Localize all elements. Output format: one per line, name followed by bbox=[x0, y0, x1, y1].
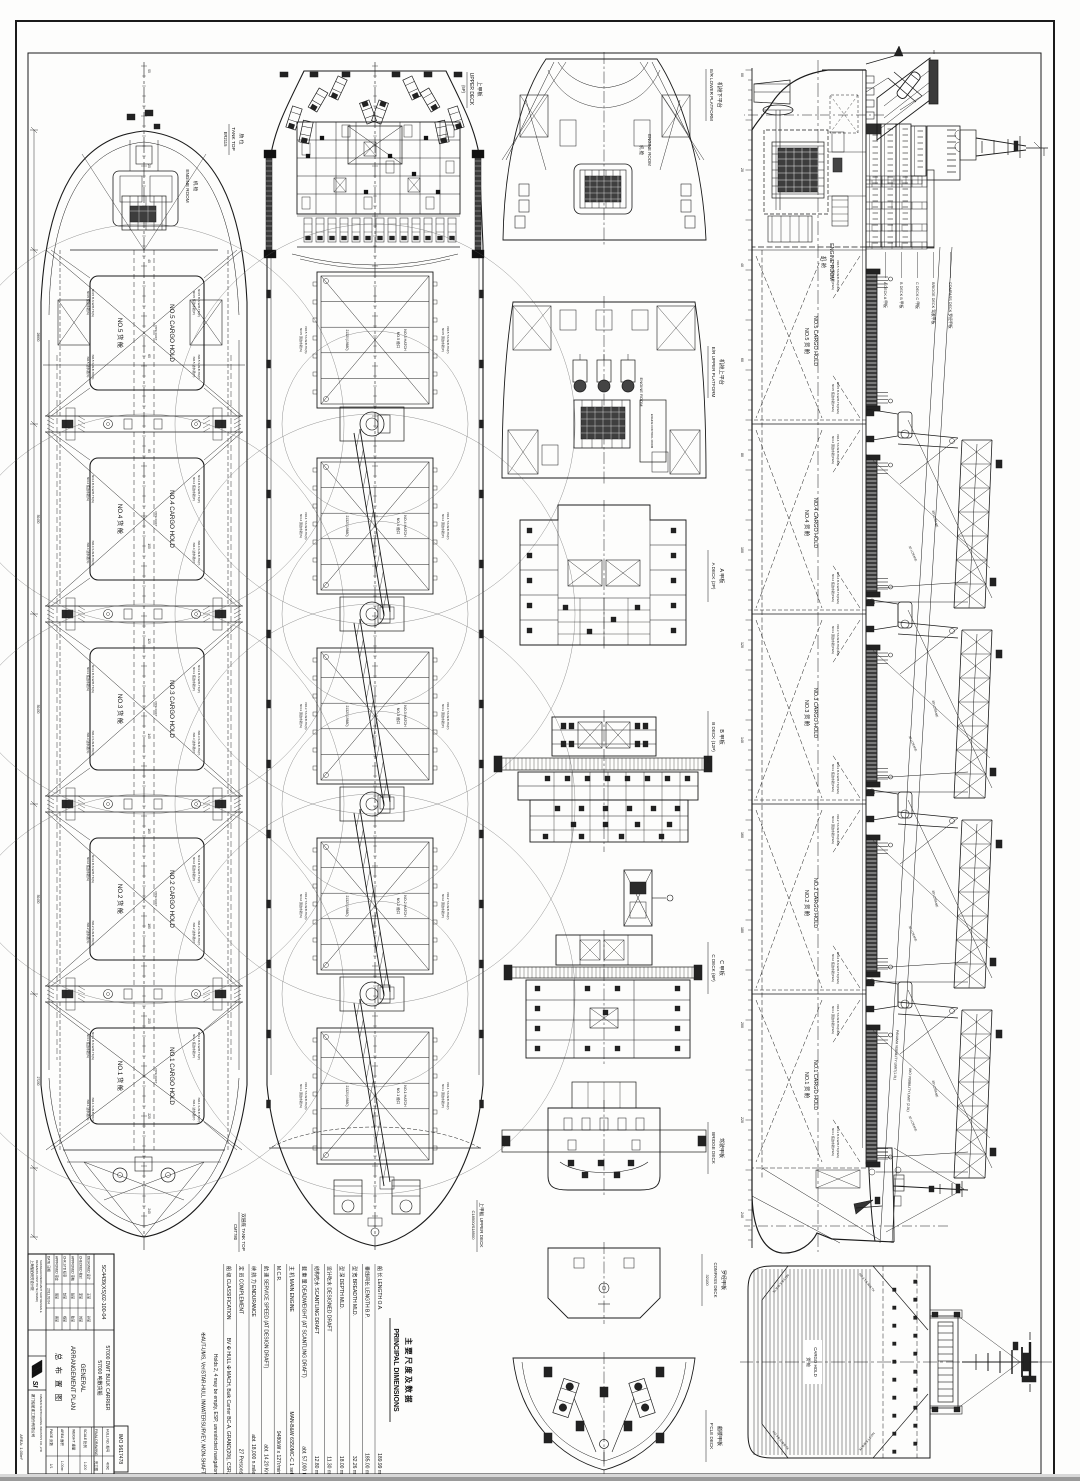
svg-text:主 机 MAIN ENGINE: 主 机 MAIN ENGINE bbox=[288, 1266, 295, 1313]
svg-text:NO.1 CARGO HOLD: NO.1 CARGO HOLD bbox=[812, 1060, 818, 1110]
svg-text:NO.4 货 舱: NO.4 货 舱 bbox=[116, 504, 124, 535]
svg-text:DATE 日期: DATE 日期 bbox=[47, 1256, 52, 1272]
svg-text:垂线间长 LENGTH B.P.: 垂线间长 LENGTH B.P. bbox=[363, 1266, 370, 1318]
svg-text:160: 160 bbox=[147, 828, 151, 834]
svg-text:NO.5 舱口: NO.5 舱口 bbox=[396, 332, 401, 349]
svg-text:180: 180 bbox=[740, 927, 744, 933]
svg-text:主 要 尺 度 及 数 据: 主 要 尺 度 及 数 据 bbox=[404, 1337, 414, 1403]
svg-text:AREA 面积: AREA 面积 bbox=[60, 1429, 65, 1446]
svg-text:NO.1 T.S.W.B.TK(P&S): NO.1 T.S.W.B.TK(P&S) bbox=[836, 1004, 840, 1035]
svg-text:21320(19880): 21320(19880) bbox=[345, 1085, 349, 1106]
svg-text:32100: 32100 bbox=[705, 1274, 710, 1286]
svg-text:NO.3 B.S.W.B.TK(P&S): NO.3 B.S.W.B.TK(P&S) bbox=[836, 762, 840, 794]
svg-text:NO.3 T.S.W.B.TK(P): NO.3 T.S.W.B.TK(P) bbox=[446, 702, 450, 729]
svg-text:NO.3 边水舱(P): NO.3 边水舱(P) bbox=[192, 733, 197, 754]
svg-text:NO.1 B.S.W.B.TK(S): NO.1 B.S.W.B.TK(S) bbox=[91, 1032, 95, 1060]
svg-text:(5P): (5P) bbox=[461, 85, 466, 94]
svg-text:NO.4 底边水舱(P&S): NO.4 底边水舱(P&S) bbox=[831, 574, 836, 602]
svg-text:240: 240 bbox=[147, 1208, 151, 1214]
svg-text:27 Persons: 27 Persons bbox=[237, 1449, 243, 1475]
svg-text:E/R LOWER PLATFORM: E/R LOWER PLATFORM bbox=[709, 69, 714, 121]
svg-text:航 速 SERVICE SPEED (AT DESIGN: 航 速 SERVICE SPEED (AT DESIGN DRAFT) bbox=[263, 1266, 270, 1369]
svg-text:A 甲板: A 甲板 bbox=[718, 569, 726, 585]
svg-text:NO.3 CARGO HOLD: NO.3 CARGO HOLD bbox=[812, 688, 818, 738]
svg-text:NO.5 S.W.B.TK(S): NO.5 S.W.B.TK(S) bbox=[91, 355, 95, 380]
svg-text:RESEARCH INSTITUTE (SDARI): RESEARCH INSTITUTE (SDARI) bbox=[35, 1260, 39, 1302]
svg-text:NO.5 边水舱(P): NO.5 边水舱(P) bbox=[192, 357, 197, 378]
svg-text:Holds 2, 4 may be empty, ESP,: Holds 2, 4 may be empty, ESP, unrestrict… bbox=[212, 1354, 218, 1474]
svg-text:NO.5 CARGO HOLD: NO.5 CARGO HOLD bbox=[168, 304, 175, 362]
svg-text:NO.2 S.W.B.TK(S): NO.2 S.W.B.TK(S) bbox=[91, 921, 95, 946]
svg-text:NO.3 S.W.B.TK(P): NO.3 S.W.B.TK(P) bbox=[197, 731, 201, 756]
svg-text:NO.5 顶边水舱(P): NO.5 顶边水舱(P) bbox=[441, 328, 446, 352]
svg-text:NO.3 货 舱: NO.3 货 舱 bbox=[116, 694, 124, 725]
svg-text:NO.3 S.W.B.TK(S): NO.3 S.W.B.TK(S) bbox=[91, 731, 95, 756]
svg-text:40: 40 bbox=[147, 259, 151, 263]
svg-text:NO.5 T.S.W.B.TK(P&S): NO.5 T.S.W.B.TK(P&S) bbox=[836, 260, 840, 291]
svg-text:NO.5 T.S.W.B.TK(S): NO.5 T.S.W.B.TK(S) bbox=[304, 326, 308, 353]
svg-text:NO.2 货 舱: NO.2 货 舱 bbox=[116, 884, 124, 915]
svg-text:18.00 m: 18.00 m bbox=[338, 1456, 344, 1474]
svg-text:NO.4 T.S.W.B.TK(P): NO.4 T.S.W.B.TK(P) bbox=[446, 512, 450, 539]
svg-text:HULL NO. 船号: HULL NO. 船号 bbox=[106, 1429, 111, 1453]
svg-text:孙某: 孙某 bbox=[87, 1316, 92, 1323]
svg-text:NO.5 边水舱(S): NO.5 边水舱(S) bbox=[86, 357, 91, 378]
svg-text:船 级 CLASSIFICATION: 船 级 CLASSIFICATION bbox=[225, 1266, 232, 1320]
svg-text:240: 240 bbox=[740, 1212, 744, 1218]
svg-text:NO.4 T.S.W.B.TK(P&S): NO.4 T.S.W.B.TK(P&S) bbox=[836, 434, 840, 465]
svg-text:NO.4 底边水舱(S): NO.4 底边水舱(S) bbox=[86, 477, 91, 501]
svg-text:NO.2 T.S.W.B.TK(P&S): NO.2 T.S.W.B.TK(P&S) bbox=[836, 814, 840, 845]
svg-text:21320(19880): 21320(19880) bbox=[345, 515, 349, 536]
svg-text:NO.2 B.S.W.B.TK(S): NO.2 B.S.W.B.TK(S) bbox=[91, 855, 95, 883]
svg-text:NO.1 S.W.B.TK(S): NO.1 S.W.B.TK(S) bbox=[91, 1098, 95, 1123]
svg-text:NO.4 B.S.W.B.TK(P&S): NO.4 B.S.W.B.TK(P&S) bbox=[836, 572, 840, 604]
svg-text:NO.5 顶边水舱(S): NO.5 顶边水舱(S) bbox=[299, 328, 304, 352]
svg-text:NO.4 T.S.W.B.TK(S): NO.4 T.S.W.B.TK(S) bbox=[304, 512, 308, 539]
svg-text:PIPE DUCT: PIPE DUCT bbox=[154, 1069, 158, 1084]
svg-text:NO.4 CARGO HOLD: NO.4 CARGO HOLD bbox=[168, 490, 175, 548]
svg-text:NO.1 T.S.W.B.TK(S): NO.1 T.S.W.B.TK(S) bbox=[304, 1082, 308, 1109]
svg-text:WEIGHT 重量: WEIGHT 重量 bbox=[72, 1429, 77, 1451]
svg-text:罗经甲板: 罗经甲板 bbox=[720, 1270, 727, 1290]
svg-text:型 宽 BREADTH MLD.: 型 宽 BREADTH MLD. bbox=[351, 1266, 358, 1316]
svg-text:C 甲板: C 甲板 bbox=[718, 960, 726, 976]
svg-text:100: 100 bbox=[147, 543, 151, 549]
svg-text:NO.5 CARGO HOLD: NO.5 CARGO HOLD bbox=[812, 316, 818, 366]
svg-text:NO.5 S.W.B.TK(P): NO.5 S.W.B.TK(P) bbox=[197, 355, 201, 380]
svg-text:续 航 力 ENDURANCE: 续 航 力 ENDURANCE bbox=[250, 1266, 257, 1318]
svg-text:30400: 30400 bbox=[36, 895, 40, 904]
svg-text:32.26 m: 32.26 m bbox=[351, 1456, 357, 1474]
svg-text:AREA: 1.00m²: AREA: 1.00m² bbox=[19, 1434, 24, 1460]
svg-text:140: 140 bbox=[740, 737, 744, 743]
svg-text:NO.2 顶边水舱(S): NO.2 顶边水舱(S) bbox=[299, 894, 304, 918]
svg-text:张某: 张某 bbox=[71, 1293, 76, 1300]
svg-text:40: 40 bbox=[740, 263, 744, 267]
svg-text:57000 DWT BULK CARRIER: 57000 DWT BULK CARRIER bbox=[104, 1346, 110, 1411]
svg-text:BV ✠ HULL ✠ MACH, Bulk Carrier: BV ✠ HULL ✠ MACH, Bulk Carrier BC-A, GRA… bbox=[225, 1338, 231, 1474]
svg-text:NO.3 T.S.W.B.TK(S): NO.3 T.S.W.B.TK(S) bbox=[304, 702, 308, 729]
svg-text:王某: 王某 bbox=[87, 1293, 92, 1300]
svg-text:PIPE DUCT: PIPE DUCT bbox=[154, 892, 158, 907]
svg-text:上甲板: 上甲板 bbox=[476, 81, 483, 96]
svg-text:机 舱: 机 舱 bbox=[192, 181, 199, 192]
svg-text:双层底 TANK TOP: 双层底 TANK TOP bbox=[240, 1213, 247, 1251]
svg-text:NO.2 B.S.W.B.TK(P): NO.2 B.S.W.B.TK(P) bbox=[197, 855, 201, 883]
svg-text:NO.3 底边水舱(P&S): NO.3 底边水舱(P&S) bbox=[831, 764, 836, 792]
svg-text:机 舱: 机 舱 bbox=[638, 145, 645, 156]
svg-text:abt. 57,000 t: abt. 57,000 t bbox=[300, 1446, 306, 1474]
svg-text:abt. 18,000 n.mile: abt. 18,000 n.mile bbox=[250, 1434, 256, 1474]
svg-text:NO.4 底边水舱(P): NO.4 底边水舱(P) bbox=[192, 477, 197, 501]
svg-text:409C: 409C bbox=[106, 1462, 110, 1471]
svg-text:APPROVED 审定: APPROVED 审定 bbox=[55, 1256, 60, 1282]
svg-text:00: 00 bbox=[740, 73, 744, 77]
svg-text:NO.3 B.S.W.B.TK(P): NO.3 B.S.W.B.TK(P) bbox=[197, 665, 201, 693]
svg-text:NO.4 顶边水舱(P&S): NO.4 顶边水舱(P&S) bbox=[831, 436, 836, 464]
svg-text:30400: 30400 bbox=[36, 515, 40, 524]
svg-text:NO.5 货 舱: NO.5 货 舱 bbox=[116, 318, 124, 349]
svg-text:200: 200 bbox=[147, 1018, 151, 1024]
svg-text:E/R UPPER PLATFORM: E/R UPPER PLATFORM bbox=[711, 347, 716, 398]
svg-text:NO.2 底边水舱(S): NO.2 底边水舱(S) bbox=[86, 857, 91, 881]
svg-text:NO.3 顶边水舱(P&S): NO.3 顶边水舱(P&S) bbox=[831, 626, 836, 654]
svg-text:21320(19880): 21320(19880) bbox=[345, 329, 349, 350]
svg-text:COMPASS DECK 罗经甲板: COMPASS DECK 罗经甲板 bbox=[948, 282, 953, 329]
svg-text:NO.1 CARGO HOLD: NO.1 CARGO HOLD bbox=[168, 1047, 175, 1105]
svg-text:NO.4 HATCH: NO.4 HATCH bbox=[403, 515, 407, 537]
svg-text:IMO 9617478: IMO 9617478 bbox=[117, 1434, 123, 1465]
svg-text:F'CLE DECK: F'CLE DECK bbox=[709, 1423, 714, 1451]
svg-text:李某: 李某 bbox=[79, 1293, 84, 1300]
svg-text:NO.1 B.S.W.B.TK(P): NO.1 B.S.W.B.TK(P) bbox=[197, 1032, 201, 1060]
svg-text:定 员 COMPLEMENT: 定 员 COMPLEMENT bbox=[237, 1266, 244, 1314]
svg-text:NO.4 边水舱(S): NO.4 边水舱(S) bbox=[86, 543, 91, 564]
svg-text:80: 80 bbox=[147, 449, 151, 453]
svg-text:陈某: 陈某 bbox=[71, 1316, 76, 1323]
svg-text:11.30 m: 11.30 m bbox=[326, 1456, 332, 1474]
svg-text:总 布 置 图: 总 布 置 图 bbox=[54, 1353, 64, 1403]
svg-text:NO.1 顶边水舱(P&S): NO.1 顶边水舱(P&S) bbox=[831, 1006, 836, 1034]
svg-text:NO.4 S.W.B.TK(P): NO.4 S.W.B.TK(P) bbox=[197, 541, 201, 566]
svg-text:120: 120 bbox=[147, 638, 151, 644]
svg-text:NO.2 CARGO HOLD: NO.2 CARGO HOLD bbox=[168, 870, 175, 928]
svg-text:NO.4 B.S.W.B.TK(P): NO.4 B.S.W.B.TK(P) bbox=[197, 475, 201, 503]
svg-text:NO.1 T.S.W.B.TK(P): NO.1 T.S.W.B.TK(P) bbox=[446, 1082, 450, 1109]
svg-text:100: 100 bbox=[740, 547, 744, 553]
svg-text:上海船舶研究设计院: 上海船舶研究设计院 bbox=[30, 1260, 35, 1291]
svg-text:BRIDGE DECK: BRIDGE DECK bbox=[711, 1132, 716, 1165]
svg-text:ENGINE ROOM: ENGINE ROOM bbox=[639, 378, 644, 407]
svg-text:PIPE DUCT: PIPE DUCT bbox=[154, 702, 158, 717]
svg-text:NO.2 顶边水舱(P): NO.2 顶边水舱(P) bbox=[441, 894, 446, 918]
svg-text:XIAMEN SHIPBUILDING INDUSTRY C: XIAMEN SHIPBUILDING INDUSTRY CO.,LTD bbox=[39, 1394, 43, 1452]
svg-text:220: 220 bbox=[740, 1117, 744, 1123]
svg-text:NO.1 S.W.B.TK(P): NO.1 S.W.B.TK(P) bbox=[197, 1098, 201, 1123]
svg-text:NO.1 底边水舱(P): NO.1 底边水舱(P) bbox=[192, 1034, 197, 1058]
svg-text:NO.3 B.S.W.B.TK(S): NO.3 B.S.W.B.TK(S) bbox=[91, 665, 95, 693]
svg-text:NO.3 CARGO HOLD: NO.3 CARGO HOLD bbox=[168, 680, 175, 738]
svg-text:PAGE 页数: PAGE 页数 bbox=[49, 1429, 54, 1447]
svg-text:CHECKED 校对: CHECKED 校对 bbox=[79, 1256, 84, 1280]
svg-text:185.00 m: 185.00 m bbox=[363, 1453, 369, 1474]
svg-text:NO.2 T.S.W.B.TK(P): NO.2 T.S.W.B.TK(P) bbox=[446, 892, 450, 919]
svg-text:60: 60 bbox=[740, 358, 744, 362]
svg-text:刘某: 刘某 bbox=[79, 1316, 84, 1323]
svg-text:NO.1 底边水舱(S): NO.1 底边水舱(S) bbox=[86, 1034, 91, 1058]
svg-text:NO.2 边水舱(S): NO.2 边水舱(S) bbox=[86, 923, 91, 944]
svg-text:NO.1 货 舱: NO.1 货 舱 bbox=[116, 1061, 124, 1092]
svg-text:黄某: 黄某 bbox=[55, 1316, 60, 1323]
svg-text:NO.5 底边水舱(S): NO.5 底边水舱(S) bbox=[86, 291, 91, 315]
svg-text:220: 220 bbox=[147, 1113, 151, 1119]
svg-text:GENERAL: GENERAL bbox=[79, 1364, 85, 1393]
svg-text:PIPE DUCT: PIPE DUCT bbox=[154, 512, 158, 527]
svg-text:1.00m²: 1.00m² bbox=[60, 1461, 64, 1472]
svg-text:NO.3 舱口: NO.3 舱口 bbox=[396, 708, 401, 725]
svg-text:80: 80 bbox=[740, 453, 744, 457]
svg-text:ENGINE ROOM: ENGINE ROOM bbox=[647, 134, 652, 166]
svg-text:NO.2 货 舱: NO.2 货 舱 bbox=[803, 890, 811, 917]
svg-text:NO.4 CARGO HOLD: NO.4 CARGO HOLD bbox=[812, 498, 818, 548]
svg-text:NO.3 顶边水舱(P): NO.3 顶边水舱(P) bbox=[441, 704, 446, 728]
svg-text:60: 60 bbox=[147, 354, 151, 358]
svg-text:21320(19880): 21320(19880) bbox=[345, 705, 349, 726]
svg-text:DESIGNED 设计: DESIGNED 设计 bbox=[87, 1256, 92, 1281]
svg-text:ENGINE CONTROL ROOM: ENGINE CONTROL ROOM bbox=[650, 414, 654, 449]
svg-text:NO.3 底边水舱(S): NO.3 底边水舱(S) bbox=[86, 667, 91, 691]
svg-text:NO.5 顶边水舱(P&S): NO.5 顶边水舱(P&S) bbox=[831, 262, 836, 290]
svg-text:NO.1 舱口: NO.1 舱口 bbox=[396, 1088, 401, 1105]
svg-text:SC4439(XS)02-100-04: SC4439(XS)02-100-04 bbox=[100, 1265, 106, 1320]
svg-text:180: 180 bbox=[147, 923, 151, 929]
svg-text:57000 吨散货船: 57000 吨散货船 bbox=[96, 1360, 103, 1395]
svg-text:27200: 27200 bbox=[36, 1077, 40, 1086]
svg-text:UPPER DECK: UPPER DECK bbox=[468, 73, 474, 106]
svg-text:NO.1 顶边水舱(P): NO.1 顶边水舱(P) bbox=[441, 1084, 446, 1108]
svg-text:140: 140 bbox=[147, 733, 151, 739]
svg-text:货 舱: 货 舱 bbox=[805, 1357, 812, 1367]
svg-text:设计吃水 DESIGNED DRAFT: 设计吃水 DESIGNED DRAFT bbox=[326, 1266, 333, 1332]
svg-text:NO.5 B.S.W.B.TK(P&S): NO.5 B.S.W.B.TK(P&S) bbox=[836, 382, 840, 414]
svg-text:120: 120 bbox=[740, 642, 744, 648]
svg-text:M.C.R.: M.C.R. bbox=[275, 1266, 281, 1282]
svg-text:COMPASS DECK: COMPASS DECK bbox=[713, 1262, 718, 1297]
svg-text:NO.1 边水舱(S): NO.1 边水舱(S) bbox=[86, 1100, 91, 1121]
svg-text:BRIDGE DECK 驾驶甲板: BRIDGE DECK 驾驶甲板 bbox=[931, 282, 936, 325]
svg-text:1:200: 1:200 bbox=[83, 1462, 87, 1471]
svg-text:周某: 周某 bbox=[55, 1293, 60, 1300]
svg-text:NO.3 边水舱(S): NO.3 边水舱(S) bbox=[86, 733, 91, 754]
svg-text:NO.3 HATCH: NO.3 HATCH bbox=[403, 705, 407, 727]
svg-text:NO.2 底边水舱(P&S): NO.2 底边水舱(P&S) bbox=[831, 954, 836, 982]
svg-text:abt. 14.20 Kn: abt. 14.20 Kn bbox=[263, 1444, 269, 1474]
svg-text:200: 200 bbox=[740, 1022, 744, 1028]
svg-text:NO.2 顶边水舱(P&S): NO.2 顶边水舱(P&S) bbox=[831, 816, 836, 844]
svg-text:00: 00 bbox=[147, 69, 151, 73]
svg-text:NO.1 货 舱: NO.1 货 舱 bbox=[803, 1072, 811, 1099]
svg-text:APPROVED 审核: APPROVED 审核 bbox=[71, 1256, 76, 1282]
svg-text:12.80 m: 12.80 m bbox=[313, 1456, 319, 1474]
svg-text:ER2115: ER2115 bbox=[223, 132, 228, 147]
svg-text:完工图: 完工图 bbox=[94, 1461, 99, 1472]
svg-text:2011.09.04: 2011.09.04 bbox=[47, 1288, 51, 1304]
svg-text:NO.4 B.S.W.B.TK(S): NO.4 B.S.W.B.TK(S) bbox=[91, 475, 95, 503]
svg-text:艏楼甲板: 艏楼甲板 bbox=[716, 1426, 723, 1446]
svg-text:PIPE DUCT: PIPE DUCT bbox=[154, 326, 158, 341]
svg-text:NO.1 边水舱(P): NO.1 边水舱(P) bbox=[192, 1100, 197, 1121]
svg-text:上甲板 UPPER DECK: 上甲板 UPPER DECK bbox=[478, 1203, 485, 1249]
svg-text:NO.1 底边水舱(P&S): NO.1 底边水舱(P&S) bbox=[831, 1128, 836, 1156]
svg-text:杨某: 杨某 bbox=[63, 1316, 68, 1323]
svg-text:NO.3 底边水舱(P): NO.3 底边水舱(P) bbox=[192, 667, 197, 691]
svg-text:驾驶甲板: 驾驶甲板 bbox=[718, 1138, 725, 1158]
svg-text:载 重 量 DEADWEIGHT (AT SCANTLIN: 载 重 量 DEADWEIGHT (AT SCANTLING DRAFT) bbox=[300, 1266, 307, 1378]
svg-text:20: 20 bbox=[740, 168, 744, 172]
svg-text:NO.2 CARGO HOLD: NO.2 CARGO HOLD bbox=[812, 878, 818, 928]
svg-text:✠AUT-UMS, VeriSTAR-HULL INWATE: ✠AUT-UMS, VeriSTAR-HULL INWATERSURVEY, M… bbox=[200, 1332, 206, 1474]
svg-text:A DECK (2P): A DECK (2P) bbox=[711, 563, 716, 590]
svg-text:NO.2 T.S.W.B.TK(S): NO.2 T.S.W.B.TK(S) bbox=[304, 892, 308, 919]
svg-text:ARRANGEMENT PLAN: ARRANGEMENT PLAN bbox=[69, 1346, 75, 1410]
svg-text:9480kW x 127r/min: 9480kW x 127r/min bbox=[275, 1431, 281, 1474]
svg-text:ENGINE ROOM: ENGINE ROOM bbox=[185, 169, 190, 202]
svg-text:189.99 m: 189.99 m bbox=[376, 1453, 382, 1474]
svg-text:NO.5 B.S.W.B.TK(S): NO.5 B.S.W.B.TK(S) bbox=[91, 289, 95, 317]
svg-text:1/1: 1/1 bbox=[49, 1464, 53, 1469]
svg-text:B 甲板: B 甲板 bbox=[718, 729, 726, 745]
svg-text:NO.2 舱口: NO.2 舱口 bbox=[396, 898, 401, 915]
svg-text:TANK TOP: TANK TOP bbox=[230, 127, 236, 150]
svg-text:C18500/S18500: C18500/S18500 bbox=[471, 1211, 476, 1241]
svg-text:NO.4 舱口: NO.4 舱口 bbox=[396, 518, 401, 535]
svg-text:C DECK C 甲板: C DECK C 甲板 bbox=[915, 282, 920, 309]
svg-text:NO.5 T.S.W.B.TK(P): NO.5 T.S.W.B.TK(P) bbox=[446, 326, 450, 353]
svg-text:NO.3 货 舱: NO.3 货 舱 bbox=[803, 700, 811, 727]
svg-text:FINAL DRAWING: FINAL DRAWING bbox=[94, 1429, 98, 1456]
svg-text:B DECK B 甲板: B DECK B 甲板 bbox=[899, 282, 904, 309]
svg-text:机舱下平台: 机舱下平台 bbox=[716, 82, 724, 108]
svg-text:SCALE 比例: SCALE 比例 bbox=[83, 1429, 88, 1448]
svg-text:肋 位: 肋 位 bbox=[238, 134, 245, 145]
svg-text:A DECK A 甲板: A DECK A 甲板 bbox=[883, 282, 888, 308]
svg-text:NO.2 S.W.B.TK(P): NO.2 S.W.B.TK(P) bbox=[197, 921, 201, 946]
svg-text:NO.2 边水舱(P): NO.2 边水舱(P) bbox=[192, 923, 197, 944]
svg-text:NO.2 HATCH: NO.2 HATCH bbox=[403, 895, 407, 917]
svg-text:NO.2 底边水舱(P): NO.2 底边水舱(P) bbox=[192, 857, 197, 881]
svg-text:赵某: 赵某 bbox=[63, 1293, 68, 1300]
svg-text:NO.4 边水舱(P): NO.4 边水舱(P) bbox=[192, 543, 197, 564]
svg-text:CHK.STD 标审: CHK.STD 标审 bbox=[63, 1256, 68, 1277]
svg-text:NO.5 HATCH: NO.5 HATCH bbox=[403, 329, 407, 351]
svg-text:21320(19880): 21320(19880) bbox=[345, 895, 349, 916]
svg-text:NO.1 B.S.W.B.TK(P&S): NO.1 B.S.W.B.TK(P&S) bbox=[836, 1126, 840, 1158]
svg-text:NO.1 HATCH: NO.1 HATCH bbox=[403, 1085, 407, 1107]
svg-text:NO.5 底边水舱(P): NO.5 底边水舱(P) bbox=[192, 291, 197, 315]
svg-text:NO.5 货 舱: NO.5 货 舱 bbox=[803, 328, 811, 355]
svg-text:NO.1 顶边水舱(S): NO.1 顶边水舱(S) bbox=[299, 1084, 304, 1108]
svg-text:C DECK (6P): C DECK (6P) bbox=[711, 954, 716, 982]
svg-text:NO.3 T.S.W.B.TK(P&S): NO.3 T.S.W.B.TK(P&S) bbox=[836, 624, 840, 655]
svg-text:船 长 LENGTH O.A.: 船 长 LENGTH O.A. bbox=[376, 1266, 383, 1310]
svg-text:NO.3 顶边水舱(S): NO.3 顶边水舱(S) bbox=[299, 704, 304, 728]
svg-text:结构吃水 SCANTLING DRAFT: 结构吃水 SCANTLING DRAFT bbox=[313, 1266, 320, 1334]
svg-text:MAN-B&W 6S50MC-C 1 set: MAN-B&W 6S50MC-C 1 set bbox=[288, 1411, 294, 1474]
svg-text:B DECK (12P): B DECK (12P) bbox=[711, 722, 716, 752]
svg-text:NO.4 顶边水舱(P): NO.4 顶边水舱(P) bbox=[441, 514, 446, 538]
svg-text:PRINCIPAL DIMENSIONS: PRINCIPAL DIMENSIONS bbox=[392, 1328, 399, 1412]
svg-text:机舱上平台: 机舱上平台 bbox=[718, 359, 726, 385]
svg-text:30400: 30400 bbox=[36, 705, 40, 714]
svg-text:NO.5 底边水舱(P&S): NO.5 底边水舱(P&S) bbox=[831, 384, 836, 412]
svg-text:型 深 DEPTH MLD.: 型 深 DEPTH MLD. bbox=[338, 1266, 345, 1309]
svg-text:NO.4 S.W.B.TK(S): NO.4 S.W.B.TK(S) bbox=[91, 541, 95, 566]
svg-text:厦门船舶重工股份有限公司: 厦门船舶重工股份有限公司 bbox=[31, 1394, 36, 1438]
svg-text:CMT780: CMT780 bbox=[233, 1224, 238, 1241]
svg-text:20: 20 bbox=[147, 164, 151, 168]
svg-text:NO.4 顶边水舱(S): NO.4 顶边水舱(S) bbox=[299, 514, 304, 538]
svg-text:NO.5 B.S.W.B.TK(P): NO.5 B.S.W.B.TK(P) bbox=[197, 289, 201, 317]
svg-text:28800: 28800 bbox=[36, 333, 40, 342]
svg-text:NO.2 B.S.W.B.TK(P&S): NO.2 B.S.W.B.TK(P&S) bbox=[836, 952, 840, 984]
svg-text:160: 160 bbox=[740, 832, 744, 838]
svg-text:SI: SI bbox=[31, 1381, 38, 1389]
svg-text:NO.4 货 舱: NO.4 货 舱 bbox=[803, 510, 811, 537]
